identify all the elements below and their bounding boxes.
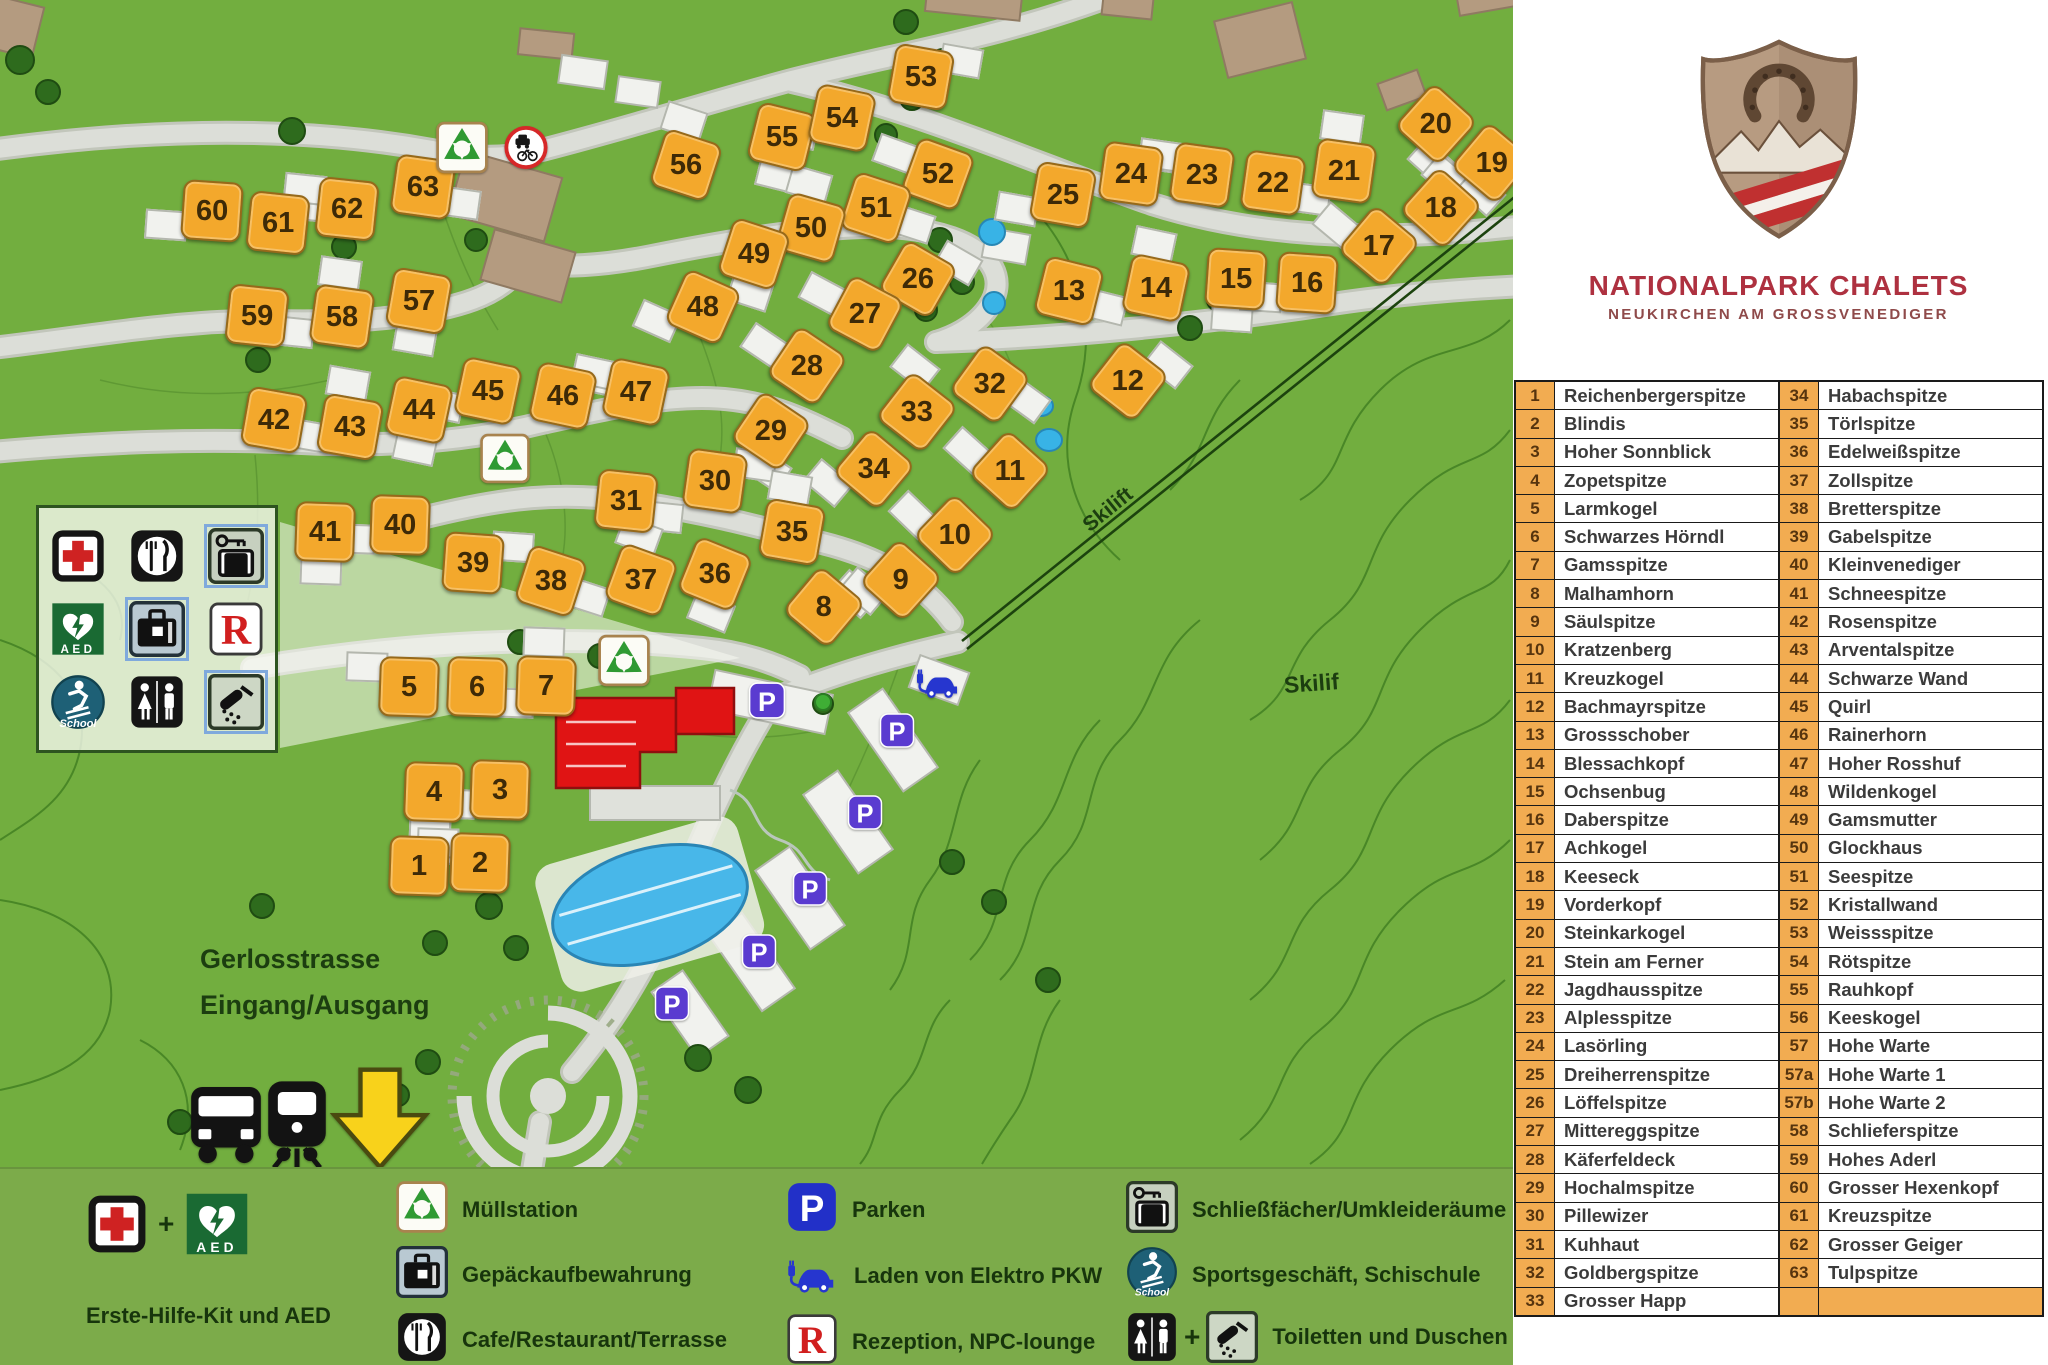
- row-number: 46: [1780, 722, 1819, 749]
- row-number: 7: [1516, 552, 1555, 579]
- recycle-map-icon: [598, 635, 650, 692]
- table-row: 60Grosser Hexenkopf: [1780, 1173, 2042, 1201]
- row-name: Stein am Ferner: [1555, 948, 1778, 975]
- chalet-marker-40: 40: [369, 494, 431, 556]
- chalet-number: 18: [1425, 191, 1457, 224]
- mapparking-icon: P: [654, 986, 690, 1022]
- legend-item: RRezeption, NPC-lounge: [786, 1313, 1102, 1365]
- row-number: 45: [1780, 693, 1819, 720]
- chalet-number: 15: [1220, 262, 1252, 295]
- table-row: 46Rainerhorn: [1780, 721, 2042, 749]
- directory-table: 1Reichenbergerspitze2Blindis3Hoher Sonnb…: [1514, 380, 2044, 1317]
- table-row: 57bHohe Warte 2: [1780, 1088, 2042, 1116]
- chalet-number: 40: [384, 508, 416, 541]
- school-legend-icon: School: [1126, 1246, 1178, 1303]
- row-number: 53: [1780, 920, 1819, 947]
- chalet-marker-24: 24: [1097, 140, 1165, 208]
- table-row: 8Malhamhorn: [1516, 579, 1778, 607]
- brand-logo: [1693, 34, 1865, 251]
- map-label: Eingang/Ausgang: [200, 990, 430, 1021]
- row-name: Schneespitze: [1819, 580, 2042, 607]
- chalet-number: 7: [538, 669, 554, 702]
- row-name: Steinkarkogel: [1555, 920, 1778, 947]
- table-row: 29Hochalmspitze: [1516, 1173, 1778, 1201]
- row-name: Blessachkopf: [1555, 750, 1778, 777]
- chalet-number: 9: [893, 563, 909, 596]
- row-number: 33: [1516, 1288, 1555, 1315]
- chalet-number: 31: [610, 484, 642, 517]
- row-name: Larmkogel: [1555, 495, 1778, 522]
- school-icon: School: [1126, 1246, 1178, 1298]
- row-number: 38: [1780, 495, 1819, 522]
- table-row: 32Goldbergspitze: [1516, 1258, 1778, 1286]
- legend-label: Gepäckaufbewahrung: [462, 1262, 692, 1288]
- firstaid-icon: [86, 1193, 148, 1255]
- table-row: 1Reichenbergerspitze: [1516, 382, 1778, 409]
- table-row: 50Glockhaus: [1780, 834, 2042, 862]
- right-panel: NATIONALPARK CHALETS NEUKIRCHEN AM GROSS…: [1513, 0, 2048, 1365]
- chalet-number: 27: [849, 297, 881, 330]
- row-name: Gamsspitze: [1555, 552, 1778, 579]
- chalet-marker-59: 59: [224, 283, 290, 349]
- row-name: Tulpspitze: [1819, 1259, 2042, 1286]
- table-row: 57aHohe Warte 1: [1780, 1060, 2042, 1088]
- row-name: Blindis: [1555, 410, 1778, 437]
- chalet-number: 23: [1186, 158, 1218, 191]
- row-name: Weissspitze: [1819, 920, 2042, 947]
- row-name: Gabelspitze: [1819, 523, 2042, 550]
- legend-item: Cafe/Restaurant/Terrasse: [396, 1311, 727, 1365]
- aed-icon: AED: [184, 1191, 250, 1257]
- ev-icon: [915, 657, 963, 705]
- row-number: 59: [1780, 1146, 1819, 1173]
- row-name: Schwarze Wand: [1819, 665, 2042, 692]
- chalet-number: 60: [196, 194, 228, 227]
- row-name: Bachmayrspitze: [1555, 693, 1778, 720]
- chalet-marker-62: 62: [314, 176, 380, 242]
- row-name: Keeskogel: [1819, 1005, 2042, 1032]
- svg-text:School: School: [60, 718, 98, 730]
- directory-column-left: 1Reichenbergerspitze2Blindis3Hoher Sonnb…: [1516, 382, 1780, 1315]
- table-row: 35Törlspitze: [1780, 409, 2042, 437]
- reception-building: [556, 688, 734, 820]
- row-name: Wildenkogel: [1819, 778, 2042, 805]
- row-name: Zollspitze: [1819, 467, 2042, 494]
- recycle-icon: [436, 122, 488, 174]
- chalet-number: 50: [795, 211, 827, 244]
- chalet-marker-23: 23: [1168, 141, 1236, 209]
- shower-legend-icon: [207, 673, 265, 731]
- table-row: 48Wildenkogel: [1780, 777, 2042, 805]
- chalet-number: 16: [1291, 266, 1323, 299]
- table-row: 45Quirl: [1780, 692, 2042, 720]
- table-row: 40Kleinvenediger: [1780, 551, 2042, 579]
- row-name: Lasörling: [1555, 1033, 1778, 1060]
- chalet-number: 43: [334, 410, 366, 443]
- chalet-marker-5: 5: [378, 656, 440, 718]
- restaurant-legend-icon: [128, 527, 186, 585]
- legend-bar: +AEDErste-Hilfe-Kit und AEDMüllstationGe…: [0, 1167, 1513, 1365]
- chalet-number: 1: [411, 849, 427, 882]
- row-number: 22: [1516, 976, 1555, 1003]
- reception-legend-icon: R: [207, 600, 265, 658]
- row-name: Rauhkopf: [1819, 976, 2042, 1003]
- row-number: 37: [1780, 467, 1819, 494]
- legend-label: Sportsgeschäft, Schischule: [1192, 1262, 1481, 1288]
- chalet-number: 30: [699, 464, 731, 497]
- row-number: 29: [1516, 1174, 1555, 1201]
- table-row: 19Vorderkopf: [1516, 890, 1778, 918]
- chalet-parking-pad: [522, 626, 565, 657]
- reception-icon: R: [208, 601, 264, 657]
- chalet-marker-4: 4: [403, 761, 465, 823]
- row-name: Keeseck: [1555, 863, 1778, 890]
- reception-legend-icon: R: [786, 1313, 838, 1365]
- row-name: Dreiherrenspitze: [1555, 1061, 1778, 1088]
- svg-text:P: P: [888, 718, 905, 746]
- table-row: 41Schneespitze: [1780, 579, 2042, 607]
- svg-text:P: P: [663, 991, 680, 1019]
- map-area: 6061626356555453525150492524232221201918…: [0, 0, 1513, 1365]
- recycle-map-icon: [436, 122, 488, 179]
- legend-item: Müllstation: [396, 1181, 727, 1238]
- table-row: 38Bretterspitze: [1780, 494, 2042, 522]
- row-name: Törlspitze: [1819, 410, 2042, 437]
- chalet-number: 54: [826, 101, 858, 134]
- row-name: Hohes Aderl: [1819, 1146, 2042, 1173]
- ev-icon: [786, 1246, 840, 1300]
- legend-item: Gepäckaufbewahrung: [396, 1246, 727, 1303]
- nosign-icon: [503, 125, 549, 171]
- chalet-marker-1: 1: [388, 835, 450, 897]
- row-number: 50: [1780, 835, 1819, 862]
- row-number: 11: [1516, 665, 1555, 692]
- row-name: Kreuzkogel: [1555, 665, 1778, 692]
- parking-map-icon: P: [741, 934, 777, 975]
- table-row: 57Hohe Warte: [1780, 1032, 2042, 1060]
- facility-legend-box: AEDRSchool: [36, 505, 278, 753]
- row-number: 3: [1516, 439, 1555, 466]
- chalet-number: 12: [1112, 364, 1144, 397]
- chalet-number: 36: [699, 557, 731, 590]
- row-number: 47: [1780, 750, 1819, 777]
- table-row: 44Schwarze Wand: [1780, 664, 2042, 692]
- chalet-number: 21: [1328, 154, 1360, 187]
- chalet-marker-45: 45: [452, 355, 523, 426]
- row-number: 21: [1516, 948, 1555, 975]
- legend-item: +Toiletten und Duschen: [1126, 1311, 1508, 1363]
- svg-text:AED: AED: [60, 643, 95, 656]
- table-row: 39Gabelspitze: [1780, 522, 2042, 550]
- chalet-marker-2: 2: [449, 832, 511, 894]
- table-row: 61Kreuzspitze: [1780, 1202, 2042, 1230]
- legend-label: Rezeption, NPC-lounge: [852, 1329, 1095, 1355]
- row-name: Bretterspitze: [1819, 495, 2042, 522]
- row-number: 27: [1516, 1118, 1555, 1145]
- chalet-number: 19: [1476, 146, 1508, 179]
- chalet-number: 8: [816, 590, 832, 623]
- facility-box-row: [49, 527, 265, 585]
- table-row: 63Tulpspitze: [1780, 1258, 2042, 1286]
- row-name: Daberspitze: [1555, 806, 1778, 833]
- row-number: [1780, 1288, 1819, 1315]
- table-row: 4Zopetspitze: [1516, 466, 1778, 494]
- row-number: 39: [1780, 523, 1819, 550]
- row-name: Zopetspitze: [1555, 467, 1778, 494]
- row-number: 62: [1780, 1231, 1819, 1258]
- table-row: 52Kristallwand: [1780, 890, 2042, 918]
- row-number: 20: [1516, 920, 1555, 947]
- legend-item: Schließfächer/Umkleideräume: [1126, 1181, 1508, 1238]
- row-name: Reichenbergerspitze: [1555, 382, 1778, 409]
- chalet-number: 10: [939, 518, 971, 551]
- row-name: Achkogel: [1555, 835, 1778, 862]
- chalet-number: 51: [860, 191, 892, 224]
- row-number: 25: [1516, 1061, 1555, 1088]
- school-icon: School: [50, 674, 106, 730]
- table-row: 53Weissspitze: [1780, 919, 2042, 947]
- facility-box-row: AEDR: [49, 600, 265, 658]
- row-number: 18: [1516, 863, 1555, 890]
- row-name: Hoher Rosshuf: [1819, 750, 2042, 777]
- luggage-legend-icon: [396, 1246, 448, 1303]
- table-row: 12Bachmayrspitze: [1516, 692, 1778, 720]
- row-name: Ochsenbug: [1555, 778, 1778, 805]
- luggage-icon: [396, 1246, 448, 1298]
- chalet-number: 32: [974, 367, 1006, 400]
- chalet-marker-7: 7: [515, 655, 577, 717]
- chalet-marker-15: 15: [1204, 247, 1268, 311]
- wc-shower-icons: +: [1126, 1311, 1258, 1363]
- table-row: 26Löffelspitze: [1516, 1088, 1778, 1116]
- row-number: 34: [1780, 382, 1819, 409]
- legend-label: Cafe/Restaurant/Terrasse: [462, 1327, 727, 1353]
- chalet-marker-35: 35: [757, 497, 827, 567]
- table-row: 11Kreuzkogel: [1516, 664, 1778, 692]
- shower-icon: [208, 674, 264, 730]
- row-number: 30: [1516, 1203, 1555, 1230]
- row-number: 15: [1516, 778, 1555, 805]
- shield-horseshoe-icon: [1693, 34, 1865, 246]
- table-row: 13Grossschober: [1516, 721, 1778, 749]
- parking-map-icon: P: [792, 871, 828, 912]
- chalet-marker-43: 43: [315, 392, 385, 462]
- row-number: 42: [1780, 608, 1819, 635]
- recycle-legend-icon: [396, 1181, 448, 1238]
- plus-sign: +: [1184, 1321, 1200, 1353]
- chalet-number: 20: [1420, 107, 1452, 140]
- table-row: 42Rosenspitze: [1780, 607, 2042, 635]
- chalet-number: 5: [401, 670, 417, 703]
- mapparking-icon: P: [792, 871, 828, 907]
- luggage-icon: [129, 601, 185, 657]
- chalet-marker-6: 6: [446, 656, 508, 718]
- chalet-number: 45: [472, 374, 504, 407]
- chalet-number: 42: [258, 403, 290, 436]
- parking-map-icon: P: [879, 713, 915, 754]
- directory-column-right: 34Habachspitze35Törlspitze36Edelweißspit…: [1780, 382, 2042, 1315]
- legend-col4: Schließfächer/UmkleideräumeSchoolSportsg…: [1126, 1169, 1508, 1363]
- restaurant-legend-icon: [396, 1311, 448, 1365]
- table-row: 16Daberspitze: [1516, 805, 1778, 833]
- table-row: 30Pillewizer: [1516, 1202, 1778, 1230]
- row-name: Gamsmutter: [1819, 806, 2042, 833]
- row-number: 32: [1516, 1259, 1555, 1286]
- chalet-number: 2: [472, 846, 488, 879]
- row-name: Malhamhorn: [1555, 580, 1778, 607]
- chalet-number: 52: [922, 157, 954, 190]
- recycle-icon: [396, 1181, 448, 1233]
- row-number: 60: [1780, 1174, 1819, 1201]
- chalet-number: 57: [403, 284, 435, 317]
- row-name: Pillewizer: [1555, 1203, 1778, 1230]
- row-number: 48: [1780, 778, 1819, 805]
- chalet-number: 39: [457, 546, 489, 579]
- legend-label: Toiletten und Duschen: [1272, 1324, 1507, 1350]
- chalet-marker-42: 42: [239, 385, 309, 455]
- row-number: 5: [1516, 495, 1555, 522]
- table-row: 36Edelweißspitze: [1780, 438, 2042, 466]
- row-name: Rainerhorn: [1819, 722, 2042, 749]
- mapparking-icon: P: [748, 682, 786, 720]
- table-row: 3Hoher Sonnblick: [1516, 438, 1778, 466]
- row-name: Rosenspitze: [1819, 608, 2042, 635]
- row-number: 31: [1516, 1231, 1555, 1258]
- chalet-marker-39: 39: [441, 531, 505, 595]
- svg-text:P: P: [750, 939, 767, 967]
- row-number: 58: [1780, 1118, 1819, 1145]
- chalet-number: 38: [535, 564, 567, 597]
- chalet-number: 22: [1257, 166, 1289, 199]
- legend-item: +AED: [86, 1191, 331, 1257]
- table-row: 55Rauhkopf: [1780, 975, 2042, 1003]
- locker-legend-icon: [1126, 1181, 1178, 1238]
- legend-col3: PParkenLaden von Elektro PKWRRezeption, …: [786, 1169, 1102, 1365]
- row-number: 19: [1516, 891, 1555, 918]
- table-row: 31Kuhhaut: [1516, 1230, 1778, 1258]
- firstaid-icon: [50, 528, 106, 584]
- chalet-number: 17: [1363, 229, 1395, 262]
- row-number: 14: [1516, 750, 1555, 777]
- row-name: Käferfeldeck: [1555, 1146, 1778, 1173]
- chalet-marker-61: 61: [245, 190, 311, 256]
- row-name: Säulspitze: [1555, 608, 1778, 635]
- chalet-marker-16: 16: [1275, 251, 1339, 315]
- map-label: Skilif: [1283, 668, 1340, 699]
- svg-text:P: P: [758, 687, 776, 717]
- row-number: 57a: [1780, 1061, 1819, 1088]
- row-number: 17: [1516, 835, 1555, 862]
- chalet-number: 37: [625, 563, 657, 596]
- shower-icon: [1206, 1311, 1258, 1363]
- chalet-number: 33: [901, 395, 933, 428]
- row-number: 41: [1780, 580, 1819, 607]
- row-number: 40: [1780, 552, 1819, 579]
- chalet-number: 24: [1115, 157, 1147, 190]
- row-name: Grosser Hexenkopf: [1819, 1174, 2042, 1201]
- legend-label: Laden von Elektro PKW: [854, 1263, 1102, 1289]
- row-number: 57b: [1780, 1089, 1819, 1116]
- row-number: 4: [1516, 467, 1555, 494]
- legend-col2: MüllstationGepäckaufbewahrungCafe/Restau…: [396, 1169, 727, 1365]
- legend-label: Müllstation: [462, 1197, 578, 1223]
- row-number: 36: [1780, 439, 1819, 466]
- parking-map-icon: P: [748, 682, 786, 725]
- chalet-number: 3: [492, 773, 508, 806]
- table-row: 21Stein am Ferner: [1516, 947, 1778, 975]
- chalet-marker-41: 41: [294, 501, 356, 563]
- school-legend-icon: School: [49, 673, 107, 731]
- chalet-number: 56: [670, 148, 702, 181]
- recycle-icon: [598, 635, 650, 687]
- map-label: Gerlosstrasse: [200, 944, 380, 975]
- row-name: [1819, 1288, 2042, 1315]
- arrow-icon: [328, 1068, 432, 1172]
- row-name: Schlieferspitze: [1819, 1118, 2042, 1145]
- chalet-marker-60: 60: [180, 179, 244, 243]
- row-name: Goldbergspitze: [1555, 1259, 1778, 1286]
- table-row: 10Kratzenberg: [1516, 636, 1778, 664]
- parking-icon: P: [786, 1181, 838, 1233]
- row-number: 52: [1780, 891, 1819, 918]
- nosign-map-icon: [503, 125, 549, 176]
- svg-text:P: P: [856, 800, 873, 828]
- legend-item: PParken: [786, 1181, 1102, 1238]
- row-number: 49: [1780, 806, 1819, 833]
- locker-icon: [208, 528, 264, 584]
- chalet-number: 41: [309, 515, 341, 548]
- row-number: 63: [1780, 1259, 1819, 1286]
- row-name: Habachspitze: [1819, 382, 2042, 409]
- row-name: Grossschober: [1555, 722, 1778, 749]
- row-number: 10: [1516, 637, 1555, 664]
- wc-icon: [129, 674, 185, 730]
- chalet-number: 49: [738, 237, 770, 270]
- ev-legend-icon: [786, 1246, 840, 1305]
- recycle-map-icon: [480, 434, 530, 489]
- table-row: 5Larmkogel: [1516, 494, 1778, 522]
- row-number: 12: [1516, 693, 1555, 720]
- table-row: 9Säulspitze: [1516, 607, 1778, 635]
- legend-item: SchoolSportsgeschäft, Schischule: [1126, 1246, 1508, 1303]
- aed-icon: AED: [50, 601, 106, 657]
- parking-map-icon: P: [847, 795, 883, 836]
- chalet-number: 4: [426, 775, 442, 808]
- row-number: 26: [1516, 1089, 1555, 1116]
- table-row: [1780, 1287, 2042, 1315]
- row-number: 51: [1780, 863, 1819, 890]
- row-name: Mittereggspitze: [1555, 1118, 1778, 1145]
- reception-icon: R: [786, 1313, 838, 1365]
- table-row: 22Jagdhausspitze: [1516, 975, 1778, 1003]
- chalet-number: 61: [262, 206, 294, 239]
- chalet-marker-58: 58: [308, 283, 376, 351]
- row-name: Löffelspitze: [1555, 1089, 1778, 1116]
- table-row: 37Zollspitze: [1780, 466, 2042, 494]
- row-name: Edelweißspitze: [1819, 439, 2042, 466]
- chalet-number: 47: [620, 375, 652, 408]
- row-name: Quirl: [1819, 693, 2042, 720]
- table-row: 59Hohes Aderl: [1780, 1145, 2042, 1173]
- chalet-marker-57: 57: [384, 266, 454, 336]
- table-row: 28Käferfeldeck: [1516, 1145, 1778, 1173]
- chalet-number: 62: [331, 192, 363, 225]
- chalet-marker-47: 47: [600, 356, 671, 427]
- row-number: 61: [1780, 1203, 1819, 1230]
- chalet-marker-3: 3: [469, 759, 531, 821]
- row-number: 8: [1516, 580, 1555, 607]
- chalet-marker-25: 25: [1028, 160, 1098, 230]
